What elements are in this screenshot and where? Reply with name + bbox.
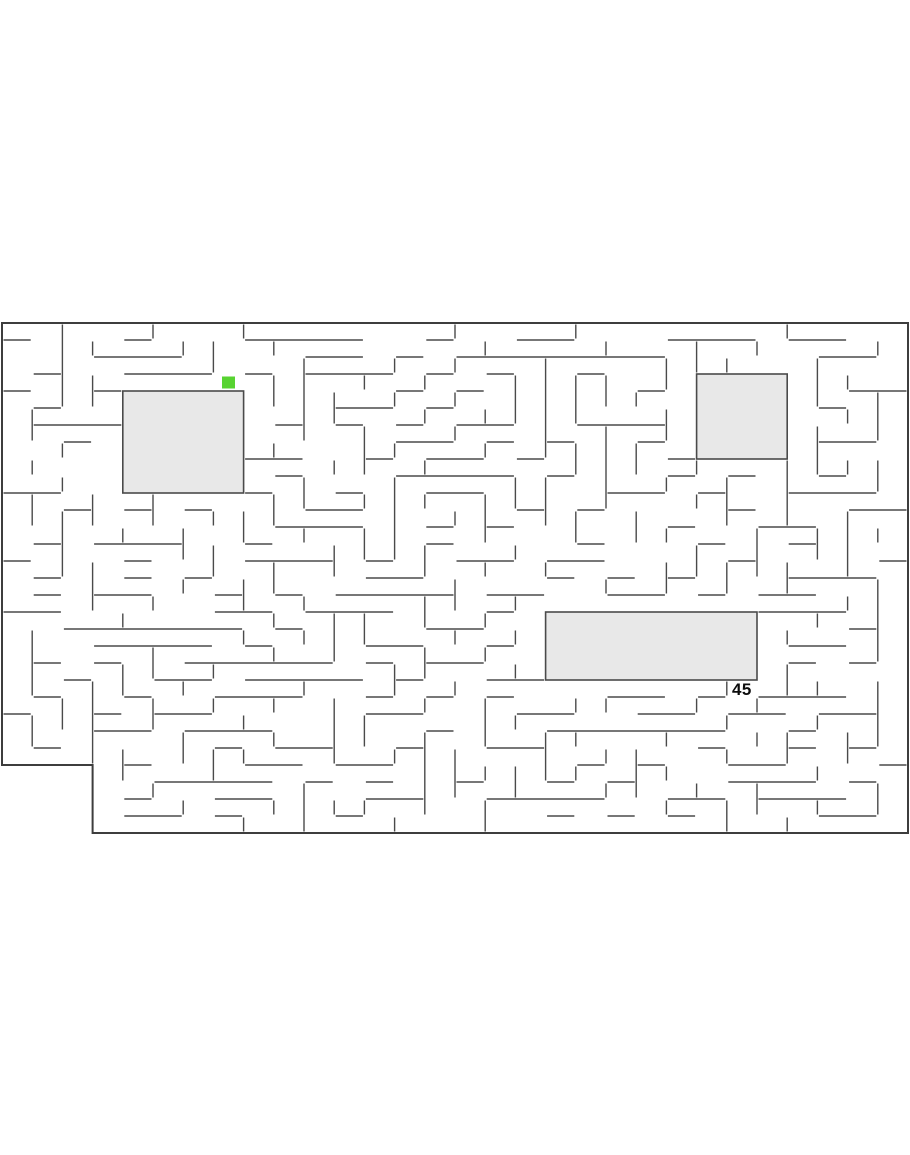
- room-area: [123, 391, 244, 493]
- room-area: [546, 612, 757, 680]
- step-count-label: 45: [732, 680, 752, 699]
- player-marker[interactable]: [222, 377, 235, 389]
- maze-canvas[interactable]: 45: [0, 0, 910, 1155]
- room-area: [697, 374, 788, 459]
- maze-game-screen: 45: [0, 0, 910, 1155]
